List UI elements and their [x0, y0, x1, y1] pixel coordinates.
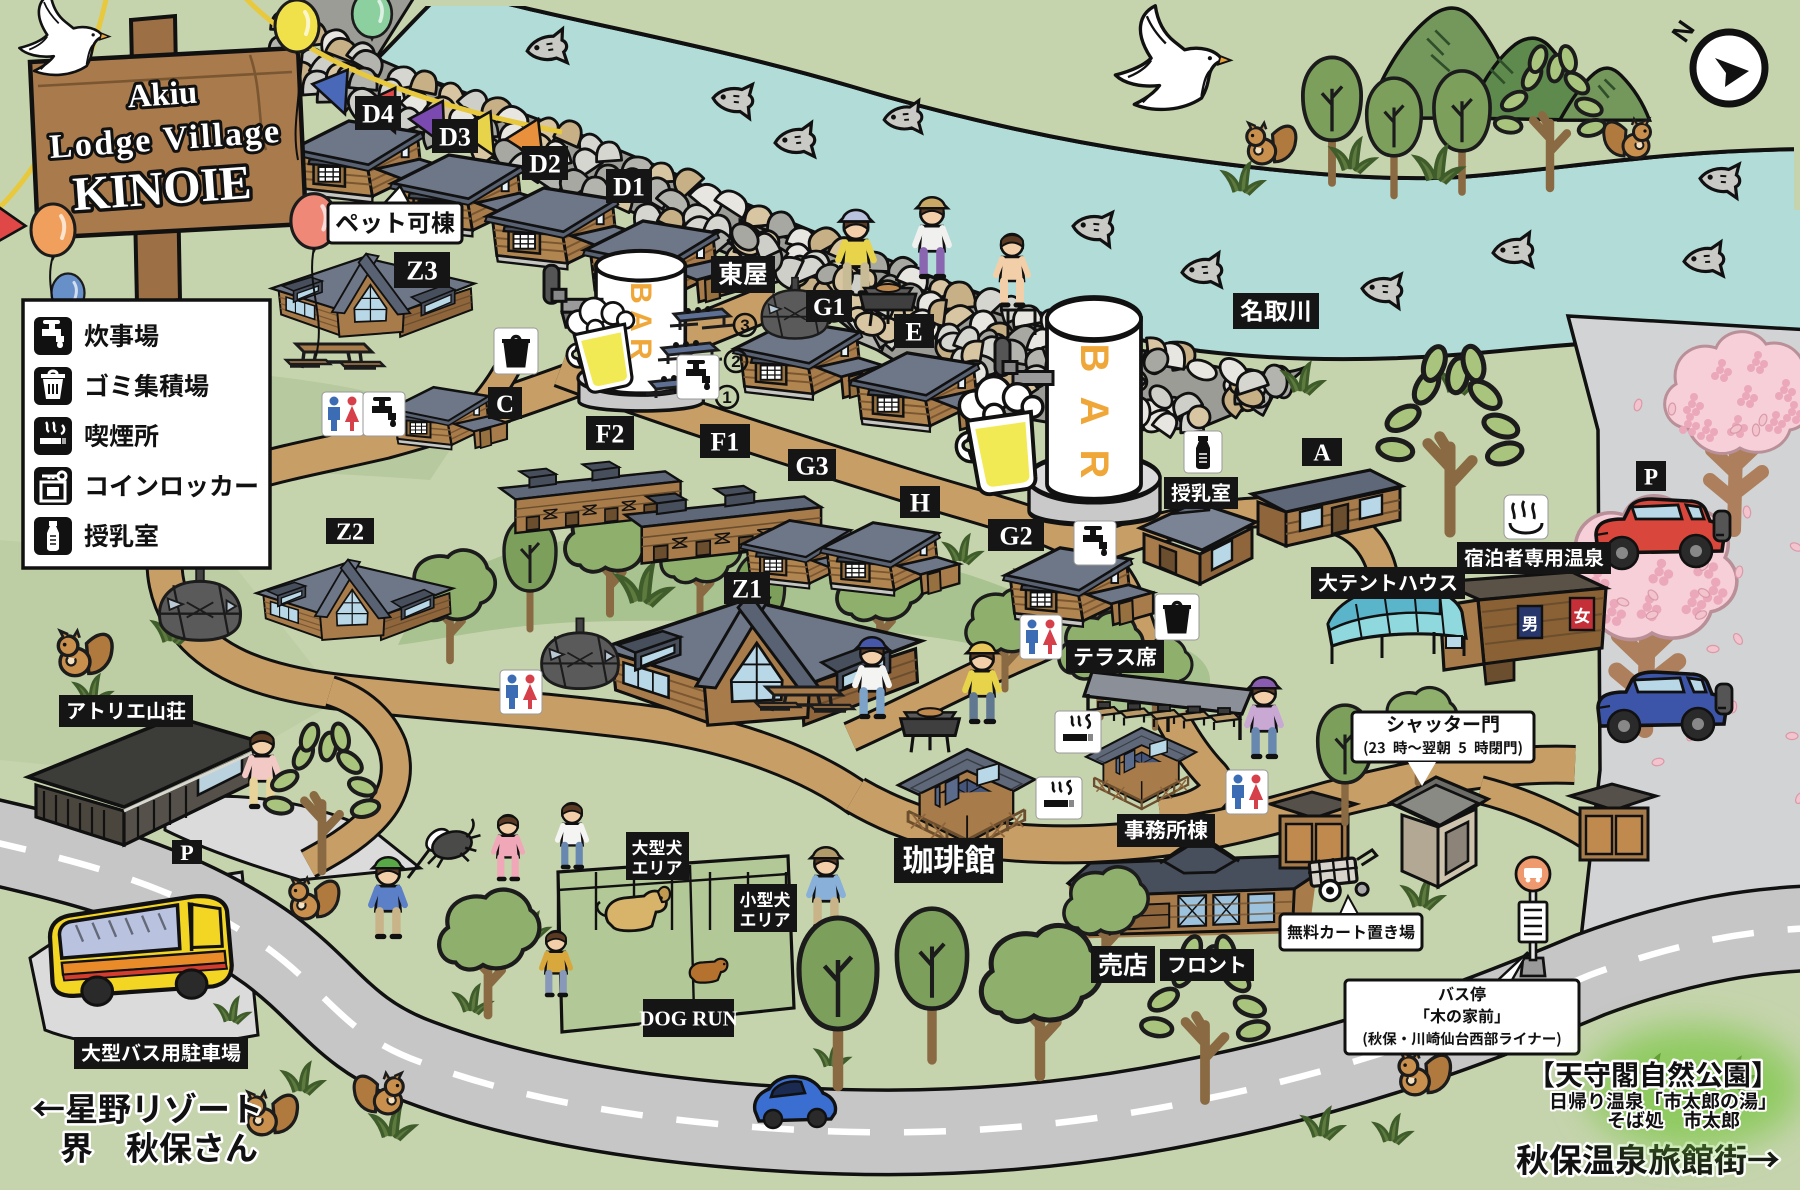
svg-text:C: C	[496, 391, 514, 418]
svg-text:D2: D2	[529, 149, 561, 178]
svg-text:G1: G1	[813, 294, 845, 321]
svg-text:P: P	[1644, 464, 1658, 489]
svg-text:A: A	[1072, 397, 1116, 426]
svg-text:R: R	[1072, 450, 1116, 479]
svg-text:D4: D4	[362, 99, 394, 128]
svg-text:P: P	[180, 840, 193, 865]
svg-text:Z1: Z1	[732, 574, 762, 603]
svg-text:3: 3	[740, 316, 749, 335]
svg-text:F2: F2	[596, 419, 625, 448]
svg-text:Akiu: Akiu	[126, 75, 198, 116]
svg-text:B: B	[1072, 344, 1116, 373]
svg-text:A: A	[1313, 441, 1331, 467]
svg-text:DOG RUN: DOG RUN	[639, 1007, 738, 1031]
svg-text:Z3: Z3	[406, 256, 438, 286]
svg-text:H: H	[910, 488, 930, 517]
svg-text:1: 1	[722, 388, 731, 407]
svg-text:F1: F1	[711, 427, 740, 456]
svg-text:B: B	[624, 282, 657, 304]
svg-text:D3: D3	[439, 122, 471, 151]
svg-text:2: 2	[731, 352, 740, 371]
svg-text:E: E	[905, 317, 922, 346]
svg-text:Z2: Z2	[336, 520, 364, 546]
svg-text:D1: D1	[613, 172, 645, 201]
svg-text:G3: G3	[795, 451, 828, 480]
svg-text:G2: G2	[999, 521, 1032, 550]
